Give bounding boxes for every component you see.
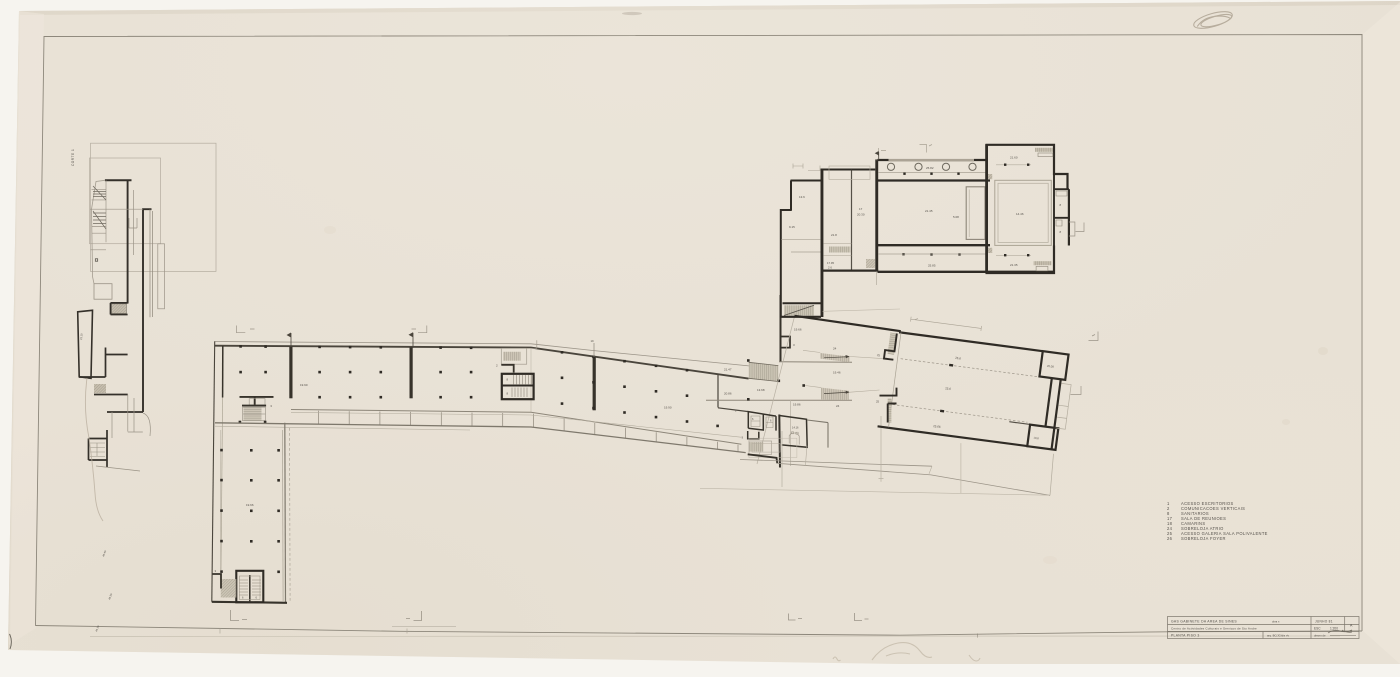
svg-text:arq. BC/JG/dis r/v: arq. BC/JG/dis r/v (1267, 634, 1290, 638)
svg-text:CORTE 1: CORTE 1 (71, 149, 75, 166)
svg-text:Centro de Actividades Culturai: Centro de Actividades Culturais e Servic… (1171, 627, 1257, 631)
svg-text:21.8: 21.8 (831, 233, 837, 237)
svg-text:13.68: 13.68 (757, 388, 765, 392)
svg-text:26.6: 26.6 (955, 356, 962, 361)
svg-text:23.10: 23.10 (79, 333, 83, 340)
svg-text:2 6: 2 6 (828, 266, 832, 270)
svg-text:19.86: 19.86 (793, 403, 801, 407)
svg-text:5.08: 5.08 (953, 215, 959, 219)
svg-text:19: 19 (591, 339, 595, 343)
svg-text:PLANTA PISO 3: PLANTA PISO 3 (1171, 634, 1200, 638)
svg-text:19.66: 19.66 (794, 328, 802, 332)
svg-text:25.6: 25.6 (945, 386, 952, 391)
svg-text:19.66: 19.66 (246, 503, 254, 507)
svg-text:26: 26 (1167, 536, 1173, 541)
svg-text:obra n: obra n (1272, 619, 1280, 623)
svg-text:10.6: 10.6 (1033, 436, 1039, 441)
svg-text:desen de: desen de (1314, 634, 1326, 638)
svg-text:21.45: 21.45 (925, 209, 933, 213)
svg-text:19.46: 19.46 (833, 371, 841, 375)
svg-text:1:200: 1:200 (1330, 627, 1338, 631)
svg-text:17: 17 (859, 207, 863, 211)
svg-text:25.82: 25.82 (926, 166, 934, 170)
svg-text:ESC: ESC (1314, 627, 1321, 631)
svg-text:14.16: 14.16 (792, 426, 799, 430)
svg-text:20.86: 20.86 (724, 392, 732, 396)
svg-text:JUNHO 81: JUNHO 81 (1315, 619, 1333, 623)
svg-text:GAS GABINETE DA AREA DE S: GAS GABINETE DA AREA DE SINES (1171, 619, 1237, 623)
svg-text:25.85: 25.85 (928, 264, 936, 268)
svg-text:21.47: 21.47 (724, 368, 732, 372)
svg-text:24: 24 (836, 404, 840, 408)
svg-text:14.46: 14.46 (1016, 212, 1024, 216)
svg-text:25: 25 (876, 400, 880, 404)
svg-text:20.30: 20.30 (857, 213, 865, 217)
svg-text:19.90: 19.90 (300, 383, 308, 387)
svg-text:9.15: 9.15 (789, 225, 795, 229)
svg-text:17.95: 17.95 (827, 261, 834, 265)
svg-text:13.6: 13.6 (799, 195, 805, 199)
svg-text:19.90: 19.90 (664, 406, 672, 410)
svg-text:SOBRELOJA FOYER: SOBRELOJA FOYER (1181, 536, 1226, 541)
svg-text:21.35: 21.35 (1010, 263, 1018, 267)
svg-text:24: 24 (833, 347, 837, 351)
svg-text:21.60: 21.60 (1010, 156, 1018, 160)
